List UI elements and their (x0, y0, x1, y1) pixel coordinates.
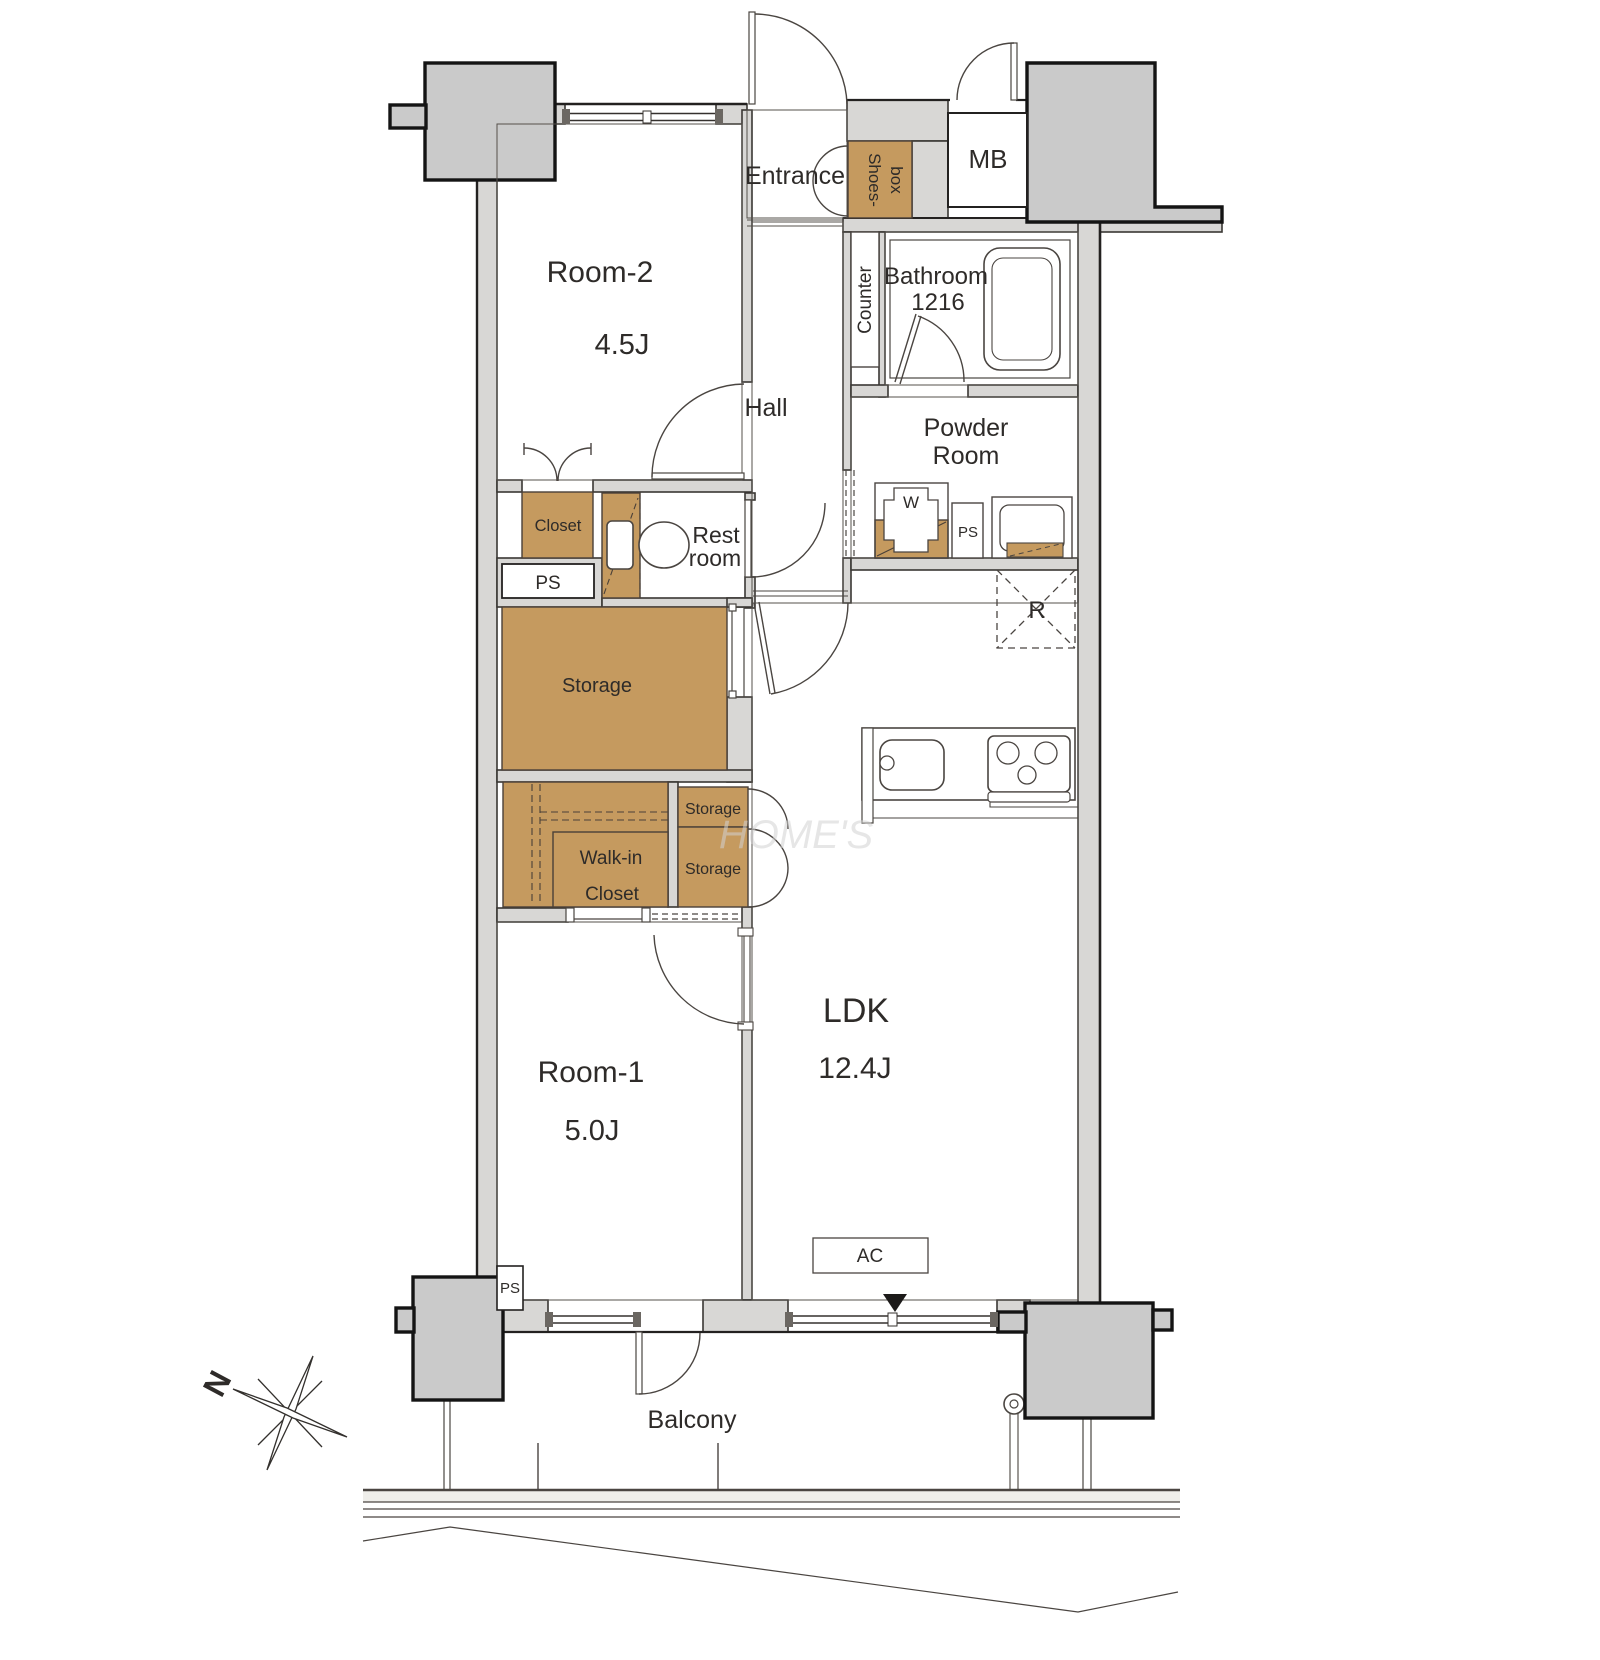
storage-lower-label: Storage (685, 861, 741, 878)
faucet-icon (880, 756, 894, 770)
wall-bath-bottom-a (851, 385, 888, 397)
ps-closet-label: PS (535, 573, 560, 594)
mb-label: MB (969, 144, 1008, 174)
room2-door (652, 384, 744, 479)
site-boundary-line (363, 1527, 1178, 1612)
kitchen-counter-return (862, 728, 873, 823)
wall-restroom-right-a (745, 493, 755, 500)
room1-area: 5.0J (565, 1115, 620, 1147)
wall-right (1078, 222, 1100, 1303)
counter-label: Counter (855, 266, 876, 334)
storage-main-label: Storage (562, 675, 632, 697)
entrance-door (749, 12, 847, 104)
ldk-area: 12.4J (818, 1052, 891, 1085)
room2-label: Room-2 (547, 256, 654, 289)
bathtub-icon (984, 248, 1060, 370)
bathroom-size: 1216 (911, 289, 964, 316)
powder-sliding-door (846, 470, 854, 558)
room1-label: Room-1 (538, 1056, 645, 1089)
powder-room-label-1: Powder (924, 414, 1009, 442)
bathroom-label: Bathroom (884, 263, 988, 290)
hall-ldk-door (753, 591, 848, 694)
wall-wic-right (668, 782, 678, 907)
railing-band (363, 1491, 1180, 1502)
shoesbox-label-2: box (887, 166, 906, 194)
wall-room2-bottom-a (497, 480, 522, 492)
restroom-label-2: room (689, 545, 741, 571)
watermark-text: HOME'S (719, 813, 874, 857)
ldk-label: LDK (823, 992, 889, 1030)
pillar-top-left (390, 63, 555, 180)
wall-bottom-b (703, 1300, 788, 1332)
floor-plan-canvas: Room-2 4.5J Entrance MB Bathroom 1216 Ha… (0, 0, 1600, 1660)
kitchen (862, 728, 1078, 823)
closet-bifold-doors (524, 443, 591, 481)
room1-floor (497, 922, 742, 1300)
balcony-label: Balcony (648, 1406, 737, 1434)
compass: N (196, 1356, 347, 1470)
shoesbox-label-1: Shoes- (865, 153, 884, 207)
compass-n-label: N (196, 1365, 239, 1402)
wall-shoesbox-right (912, 141, 948, 218)
pillar-top-right (1027, 63, 1222, 222)
toilet-icon (607, 521, 689, 569)
pillar-bottom-left (396, 1277, 503, 1400)
powder-sink-icon (992, 497, 1072, 558)
mb-door (957, 43, 1017, 100)
closet-label: Closet (535, 517, 582, 535)
balcony-railing (363, 1394, 1180, 1612)
wall-counter-bath (879, 232, 885, 397)
wall-storage-bottom (497, 770, 752, 782)
ac-label: AC (857, 1246, 883, 1267)
wall-powder-bottom (851, 558, 1078, 570)
hall-label: Hall (744, 394, 787, 422)
ps-bottom-label: PS (500, 1280, 520, 1297)
wall-bath-bottom-b (968, 385, 1078, 397)
wall-hall-powder-upper (843, 232, 851, 470)
entry-marker-triangle (883, 1294, 907, 1312)
ps-powder-label: PS (958, 524, 978, 541)
window-room2-top (562, 109, 723, 124)
wic-label-1: Walk-in (580, 848, 643, 869)
powder-room-label-2: Room (933, 442, 1000, 470)
restroom-door (745, 500, 825, 577)
stove-icon (988, 736, 1070, 802)
window-room1-balcony (545, 1312, 641, 1327)
wall-entrance-header (847, 100, 948, 141)
floor-plan-drawing: Room-2 4.5J Entrance MB Bathroom 1216 Ha… (0, 0, 1600, 1660)
room1-door (654, 928, 753, 1030)
pillar-bottom-right (998, 1303, 1172, 1418)
room2-area: 4.5J (595, 329, 650, 361)
compass-needle-north (233, 1389, 347, 1437)
room1-balcony-door (636, 1332, 700, 1394)
wic-threshold (566, 908, 738, 922)
bathroom-door (895, 314, 964, 384)
wall-room2-bottom-b (593, 480, 752, 492)
wall-room1-top (497, 908, 568, 922)
storage-sliding-door (729, 604, 744, 698)
washer-label: W (903, 493, 919, 512)
ldk-floor (752, 603, 1078, 1300)
wall-left (477, 104, 497, 1300)
refrigerator-label: R (1028, 597, 1045, 624)
window-ldk-balcony (785, 1312, 998, 1327)
entrance-label: Entrance (745, 162, 845, 190)
wall-room1-ldk (742, 1027, 752, 1300)
wic-label-2: Closet (585, 884, 640, 905)
